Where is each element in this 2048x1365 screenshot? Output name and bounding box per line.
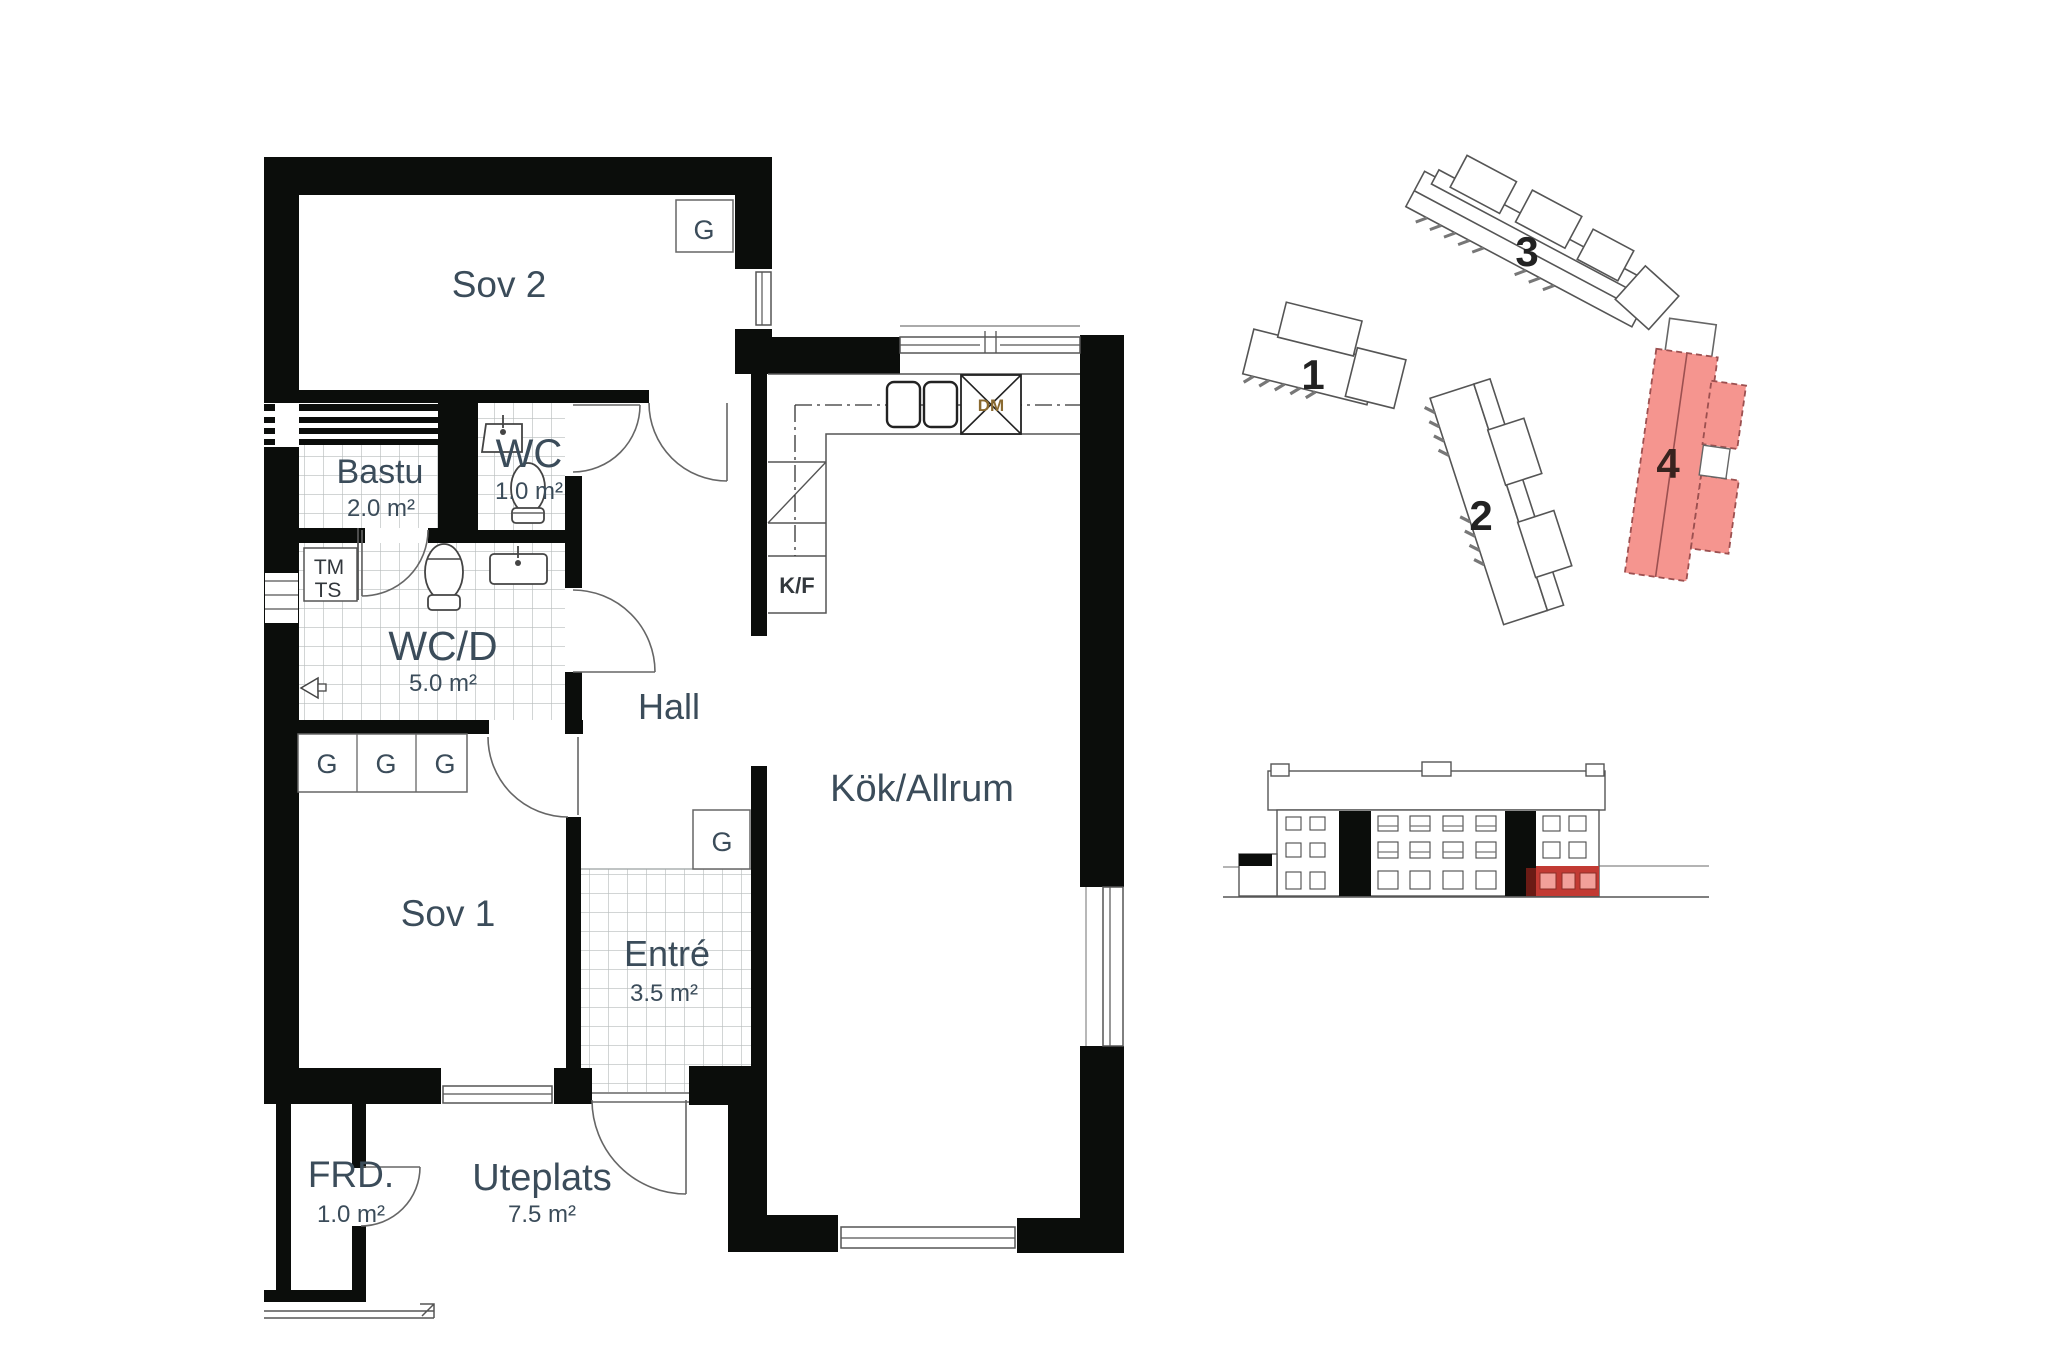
svg-text:2: 2 [1469, 492, 1492, 539]
svg-text:4: 4 [1656, 440, 1680, 487]
svg-text:Bastu: Bastu [337, 453, 424, 491]
svg-text:Entré: Entré [624, 933, 710, 974]
svg-text:Uteplats: Uteplats [472, 1157, 611, 1199]
svg-text:G: G [375, 749, 396, 779]
svg-text:FRD.: FRD. [308, 1154, 394, 1195]
svg-text:TM: TM [314, 556, 344, 579]
svg-text:WC: WC [496, 432, 563, 476]
svg-text:Hall: Hall [638, 686, 700, 727]
svg-text:1.0 m²: 1.0 m² [495, 478, 563, 505]
svg-text:Sov 2: Sov 2 [452, 264, 547, 305]
svg-text:G: G [434, 749, 455, 779]
svg-text:K/F: K/F [779, 573, 814, 598]
svg-text:2.0 m²: 2.0 m² [347, 495, 415, 522]
svg-text:3.5 m²: 3.5 m² [630, 980, 698, 1007]
svg-text:G: G [711, 827, 732, 857]
svg-text:1.0 m²: 1.0 m² [317, 1201, 385, 1228]
svg-text:7.5 m²: 7.5 m² [508, 1201, 576, 1228]
svg-text:DM: DM [978, 396, 1004, 415]
svg-text:G: G [693, 215, 714, 245]
svg-text:1: 1 [1301, 351, 1324, 398]
svg-text:Kök/Allrum: Kök/Allrum [830, 768, 1014, 810]
svg-text:5.0 m²: 5.0 m² [409, 670, 477, 697]
svg-text:WC/D: WC/D [388, 623, 497, 669]
svg-text:G: G [316, 749, 337, 779]
svg-text:TS: TS [315, 579, 342, 602]
svg-text:3: 3 [1515, 228, 1538, 275]
svg-text:Sov 1: Sov 1 [401, 893, 496, 934]
